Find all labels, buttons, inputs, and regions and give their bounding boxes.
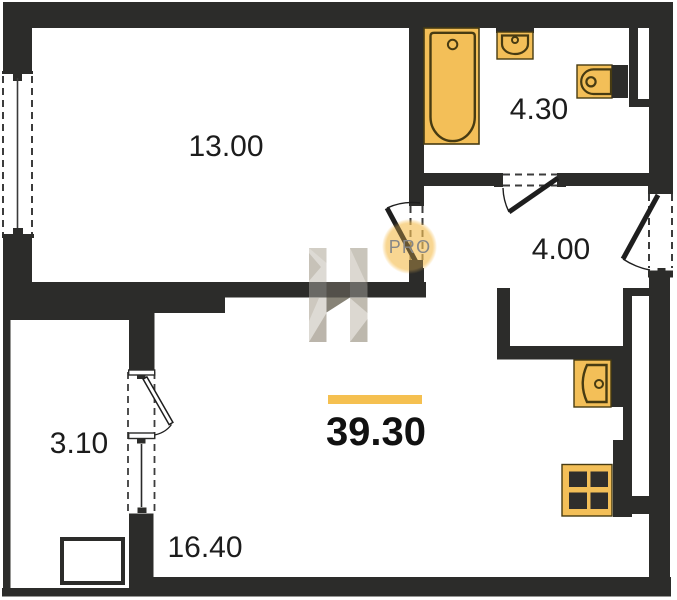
svg-text:13.00: 13.00: [188, 130, 263, 163]
svg-text:PRO: PRO: [389, 237, 432, 257]
svg-text:4.00: 4.00: [532, 233, 590, 266]
svg-text:3.10: 3.10: [50, 427, 108, 460]
svg-text:39.30: 39.30: [326, 410, 426, 454]
svg-text:16.40: 16.40: [167, 531, 242, 564]
svg-text:4.30: 4.30: [510, 93, 568, 126]
